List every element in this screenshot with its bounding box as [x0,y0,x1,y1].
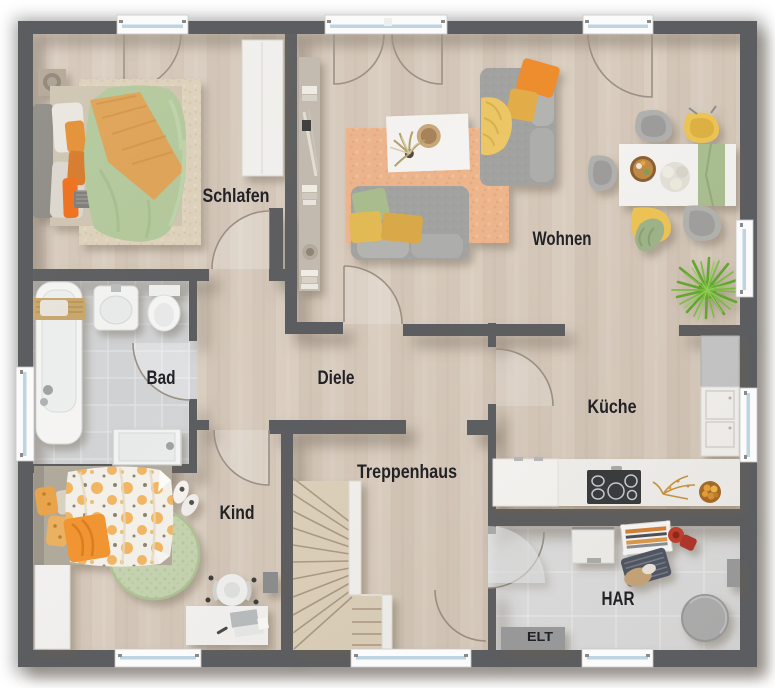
svg-text:Küche: Küche [588,397,637,418]
svg-text:ELT: ELT [527,630,553,644]
svg-text:Bad: Bad [147,368,176,389]
svg-text:Kind: Kind [220,503,255,524]
svg-text:Wohnen: Wohnen [533,229,592,250]
svg-text:Treppenhaus: Treppenhaus [357,462,457,483]
svg-text:Schlafen: Schlafen [203,186,270,207]
svg-text:Diele: Diele [318,368,355,389]
svg-text:HAR: HAR [602,589,635,610]
